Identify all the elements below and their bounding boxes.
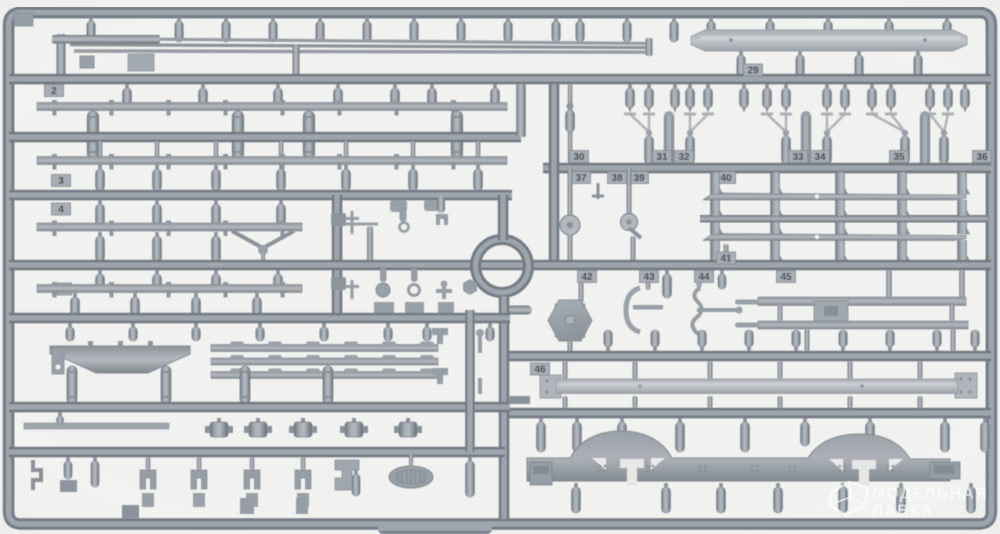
svg-text:37: 37 bbox=[575, 173, 587, 184]
svg-text:41: 41 bbox=[720, 253, 732, 264]
svg-text:42: 42 bbox=[581, 272, 593, 283]
svg-text:36: 36 bbox=[976, 152, 988, 163]
svg-text:ЛАВКА: ЛАВКА bbox=[872, 503, 934, 520]
svg-text:МОДЕЛЬНАЯ: МОДЕЛЬНАЯ bbox=[872, 486, 988, 503]
svg-text:3: 3 bbox=[58, 176, 64, 187]
svg-text:34: 34 bbox=[814, 152, 826, 163]
svg-text:32: 32 bbox=[678, 152, 690, 163]
svg-text:33: 33 bbox=[792, 152, 804, 163]
svg-text:44: 44 bbox=[698, 272, 710, 283]
svg-text:38: 38 bbox=[611, 173, 623, 184]
svg-text:2: 2 bbox=[51, 86, 57, 97]
svg-text:29: 29 bbox=[747, 65, 759, 76]
svg-text:39: 39 bbox=[633, 173, 645, 184]
svg-text:35: 35 bbox=[893, 152, 905, 163]
svg-text:40: 40 bbox=[720, 173, 732, 184]
svg-text:4: 4 bbox=[58, 204, 64, 215]
svg-text:30: 30 bbox=[573, 152, 585, 163]
svg-text:43: 43 bbox=[643, 272, 655, 283]
svg-text:46: 46 bbox=[534, 364, 546, 375]
svg-text:45: 45 bbox=[780, 272, 792, 283]
svg-text:31: 31 bbox=[656, 152, 668, 163]
